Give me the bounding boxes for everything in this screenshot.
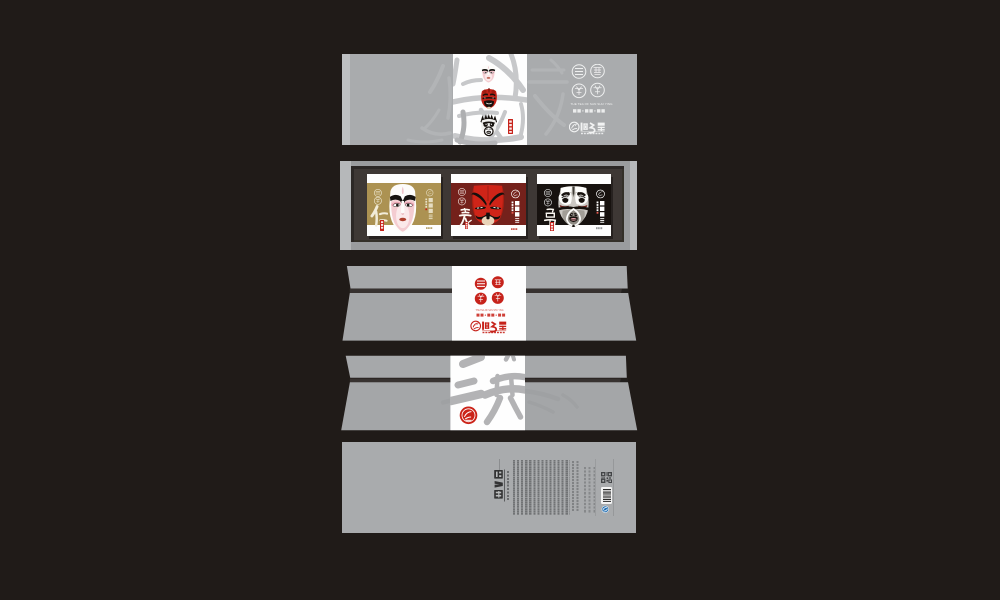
svg-text:THE TEA OF SAN SHU YING: THE TEA OF SAN SHU YING: [476, 309, 504, 312]
